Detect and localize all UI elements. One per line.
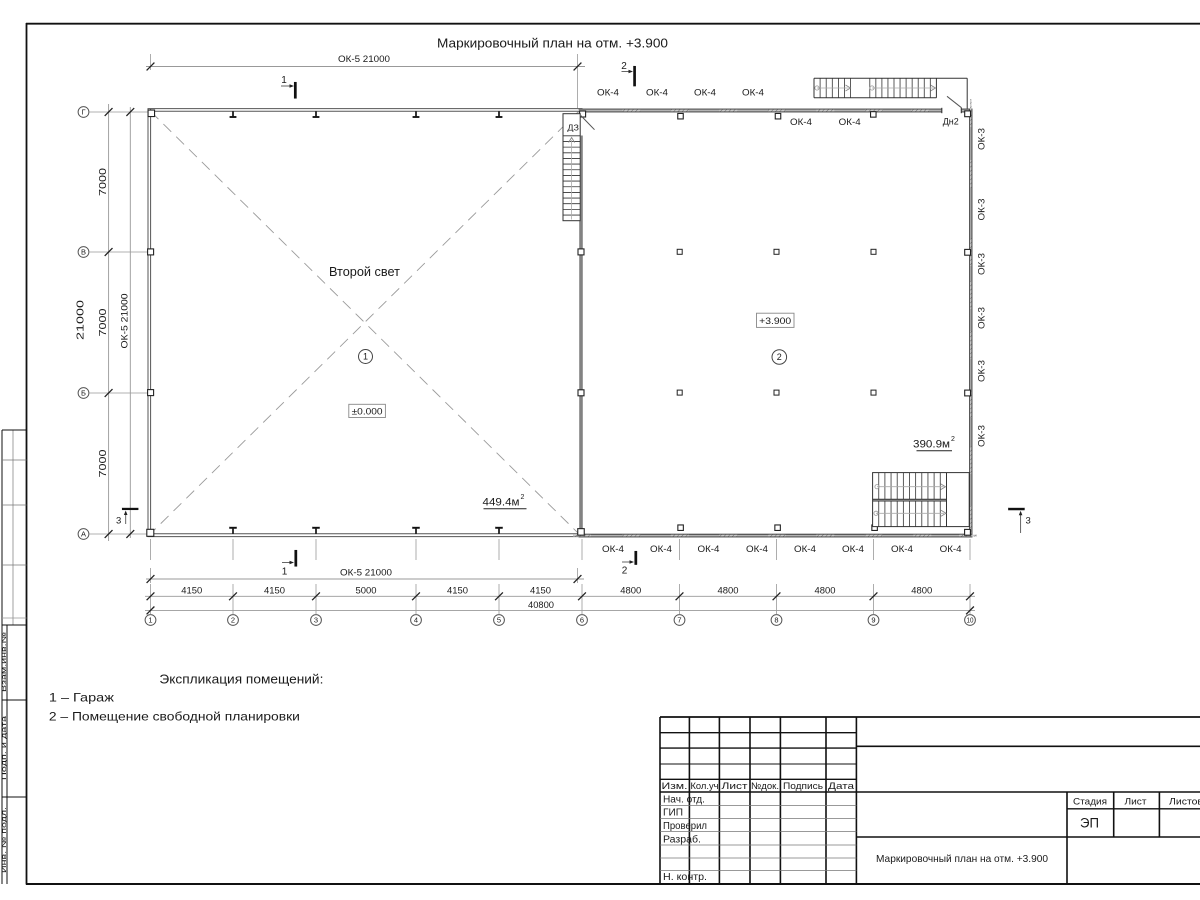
svg-text:ОК-4: ОК-4 — [891, 544, 913, 555]
svg-text:2: 2 — [951, 436, 955, 443]
svg-text:Подп. и дата: Подп. и дата — [1, 715, 8, 780]
svg-text:ОК-4: ОК-4 — [746, 544, 768, 555]
svg-text:ОК-3: ОК-3 — [977, 253, 988, 275]
svg-text:ОК-5 21000: ОК-5 21000 — [340, 568, 392, 579]
svg-text:4800: 4800 — [718, 586, 739, 597]
svg-text:ОК-5 21000: ОК-5 21000 — [338, 54, 390, 65]
svg-text:Листов: Листов — [1169, 797, 1200, 808]
svg-text:ОК-4: ОК-4 — [940, 544, 962, 555]
svg-text:Б: Б — [81, 389, 86, 398]
svg-text:Проверил: Проверил — [663, 821, 707, 832]
svg-text:449.4м: 449.4м — [483, 496, 520, 508]
svg-text:4150: 4150 — [447, 586, 468, 597]
svg-text:4150: 4150 — [530, 586, 551, 597]
svg-text:ОК-4: ОК-4 — [698, 544, 720, 555]
svg-text:ОК-3: ОК-3 — [977, 128, 988, 150]
svg-text:ОК-5 21000: ОК-5 21000 — [120, 294, 131, 349]
svg-text:390.9м: 390.9м — [913, 438, 950, 450]
svg-text:Подпись: Подпись — [783, 781, 823, 792]
svg-text:Лист: Лист — [722, 781, 749, 792]
svg-text:Разраб.: Разраб. — [663, 833, 701, 845]
svg-text:Дата: Дата — [828, 781, 855, 792]
svg-text:Изм.: Изм. — [662, 781, 688, 792]
svg-text:ГИП: ГИП — [663, 808, 683, 819]
svg-text:1: 1 — [363, 352, 368, 362]
svg-text:2: 2 — [622, 566, 628, 577]
svg-text:А: А — [81, 530, 86, 539]
svg-text:4150: 4150 — [181, 586, 202, 597]
svg-text:ОК-4: ОК-4 — [742, 88, 764, 99]
svg-text:Инв. № подл.: Инв. № подл. — [1, 807, 8, 873]
svg-text:Г: Г — [81, 108, 85, 117]
svg-text:ОК-4: ОК-4 — [790, 117, 812, 128]
svg-text:Второй свет: Второй свет — [329, 265, 400, 279]
svg-text:40800: 40800 — [528, 600, 554, 611]
svg-text:ОК-3: ОК-3 — [977, 307, 988, 329]
svg-text:ОК-4: ОК-4 — [839, 117, 861, 128]
svg-text:Кол.уч: Кол.уч — [691, 781, 719, 792]
svg-text:Маркировочный план на отм. +3.: Маркировочный план на отм. +3.900 — [876, 853, 1048, 865]
svg-text:2: 2 — [621, 61, 627, 72]
svg-text:2: 2 — [521, 494, 525, 501]
svg-text:Экспликация помещений:: Экспликация помещений: — [159, 672, 323, 687]
svg-text:Лист: Лист — [1125, 797, 1148, 808]
svg-text:5: 5 — [497, 616, 501, 625]
svg-text:3: 3 — [116, 515, 121, 526]
svg-text:Взам.инв.№: Взам.инв.№ — [1, 632, 8, 692]
svg-text:ОК-4: ОК-4 — [646, 88, 668, 99]
svg-text:1: 1 — [282, 567, 288, 578]
svg-text:ДЗ: ДЗ — [567, 124, 579, 133]
svg-text:±0.000: ±0.000 — [352, 406, 383, 417]
svg-text:ОК-4: ОК-4 — [694, 88, 716, 99]
svg-text:4800: 4800 — [620, 586, 641, 597]
svg-text:ОК-4: ОК-4 — [650, 544, 672, 555]
svg-text:7000: 7000 — [98, 167, 109, 196]
svg-text:7000: 7000 — [98, 308, 109, 337]
svg-text:3: 3 — [1026, 515, 1031, 526]
svg-text:1: 1 — [148, 616, 152, 625]
svg-text:1: 1 — [281, 75, 287, 86]
svg-text:2: 2 — [777, 352, 782, 362]
svg-text:7: 7 — [677, 616, 681, 625]
svg-text:4150: 4150 — [264, 586, 285, 597]
svg-text:Н. контр.: Н. контр. — [663, 872, 707, 883]
svg-text:1 – Гараж: 1 – Гараж — [49, 691, 114, 705]
svg-text:21000: 21000 — [76, 299, 87, 340]
svg-text:8: 8 — [774, 616, 778, 625]
svg-text:7000: 7000 — [98, 449, 109, 478]
svg-text:4: 4 — [414, 616, 418, 625]
svg-text:Дн2: Дн2 — [943, 117, 959, 128]
svg-text:3: 3 — [314, 616, 318, 625]
svg-text:9: 9 — [871, 616, 875, 625]
svg-text:ОК-3: ОК-3 — [977, 199, 988, 221]
svg-text:6: 6 — [580, 616, 584, 625]
svg-text:Стадия: Стадия — [1073, 797, 1107, 808]
svg-text:В: В — [81, 248, 86, 257]
svg-text:+3.900: +3.900 — [759, 316, 791, 327]
svg-text:ЭП: ЭП — [1080, 816, 1099, 831]
svg-text:ОК-4: ОК-4 — [842, 544, 864, 555]
svg-text:Маркировочный план на отм. +3.: Маркировочный план на отм. +3.900 — [437, 36, 668, 51]
svg-text:ОК-4: ОК-4 — [602, 544, 624, 555]
svg-text:Нач. отд.: Нач. отд. — [663, 795, 705, 806]
svg-text:ОК-4: ОК-4 — [794, 544, 816, 555]
svg-text:10: 10 — [967, 616, 974, 625]
svg-text:№док.: №док. — [751, 781, 779, 792]
svg-text:4800: 4800 — [911, 586, 932, 597]
svg-text:ОК-3: ОК-3 — [977, 425, 988, 447]
svg-text:5000: 5000 — [356, 586, 377, 597]
svg-text:4800: 4800 — [815, 586, 836, 597]
svg-text:ОК-3: ОК-3 — [977, 360, 988, 382]
svg-text:2: 2 — [231, 616, 235, 625]
svg-text:2 – Помещение свободной планир: 2 – Помещение свободной планировки — [49, 709, 300, 723]
svg-text:ОК-4: ОК-4 — [597, 88, 619, 99]
